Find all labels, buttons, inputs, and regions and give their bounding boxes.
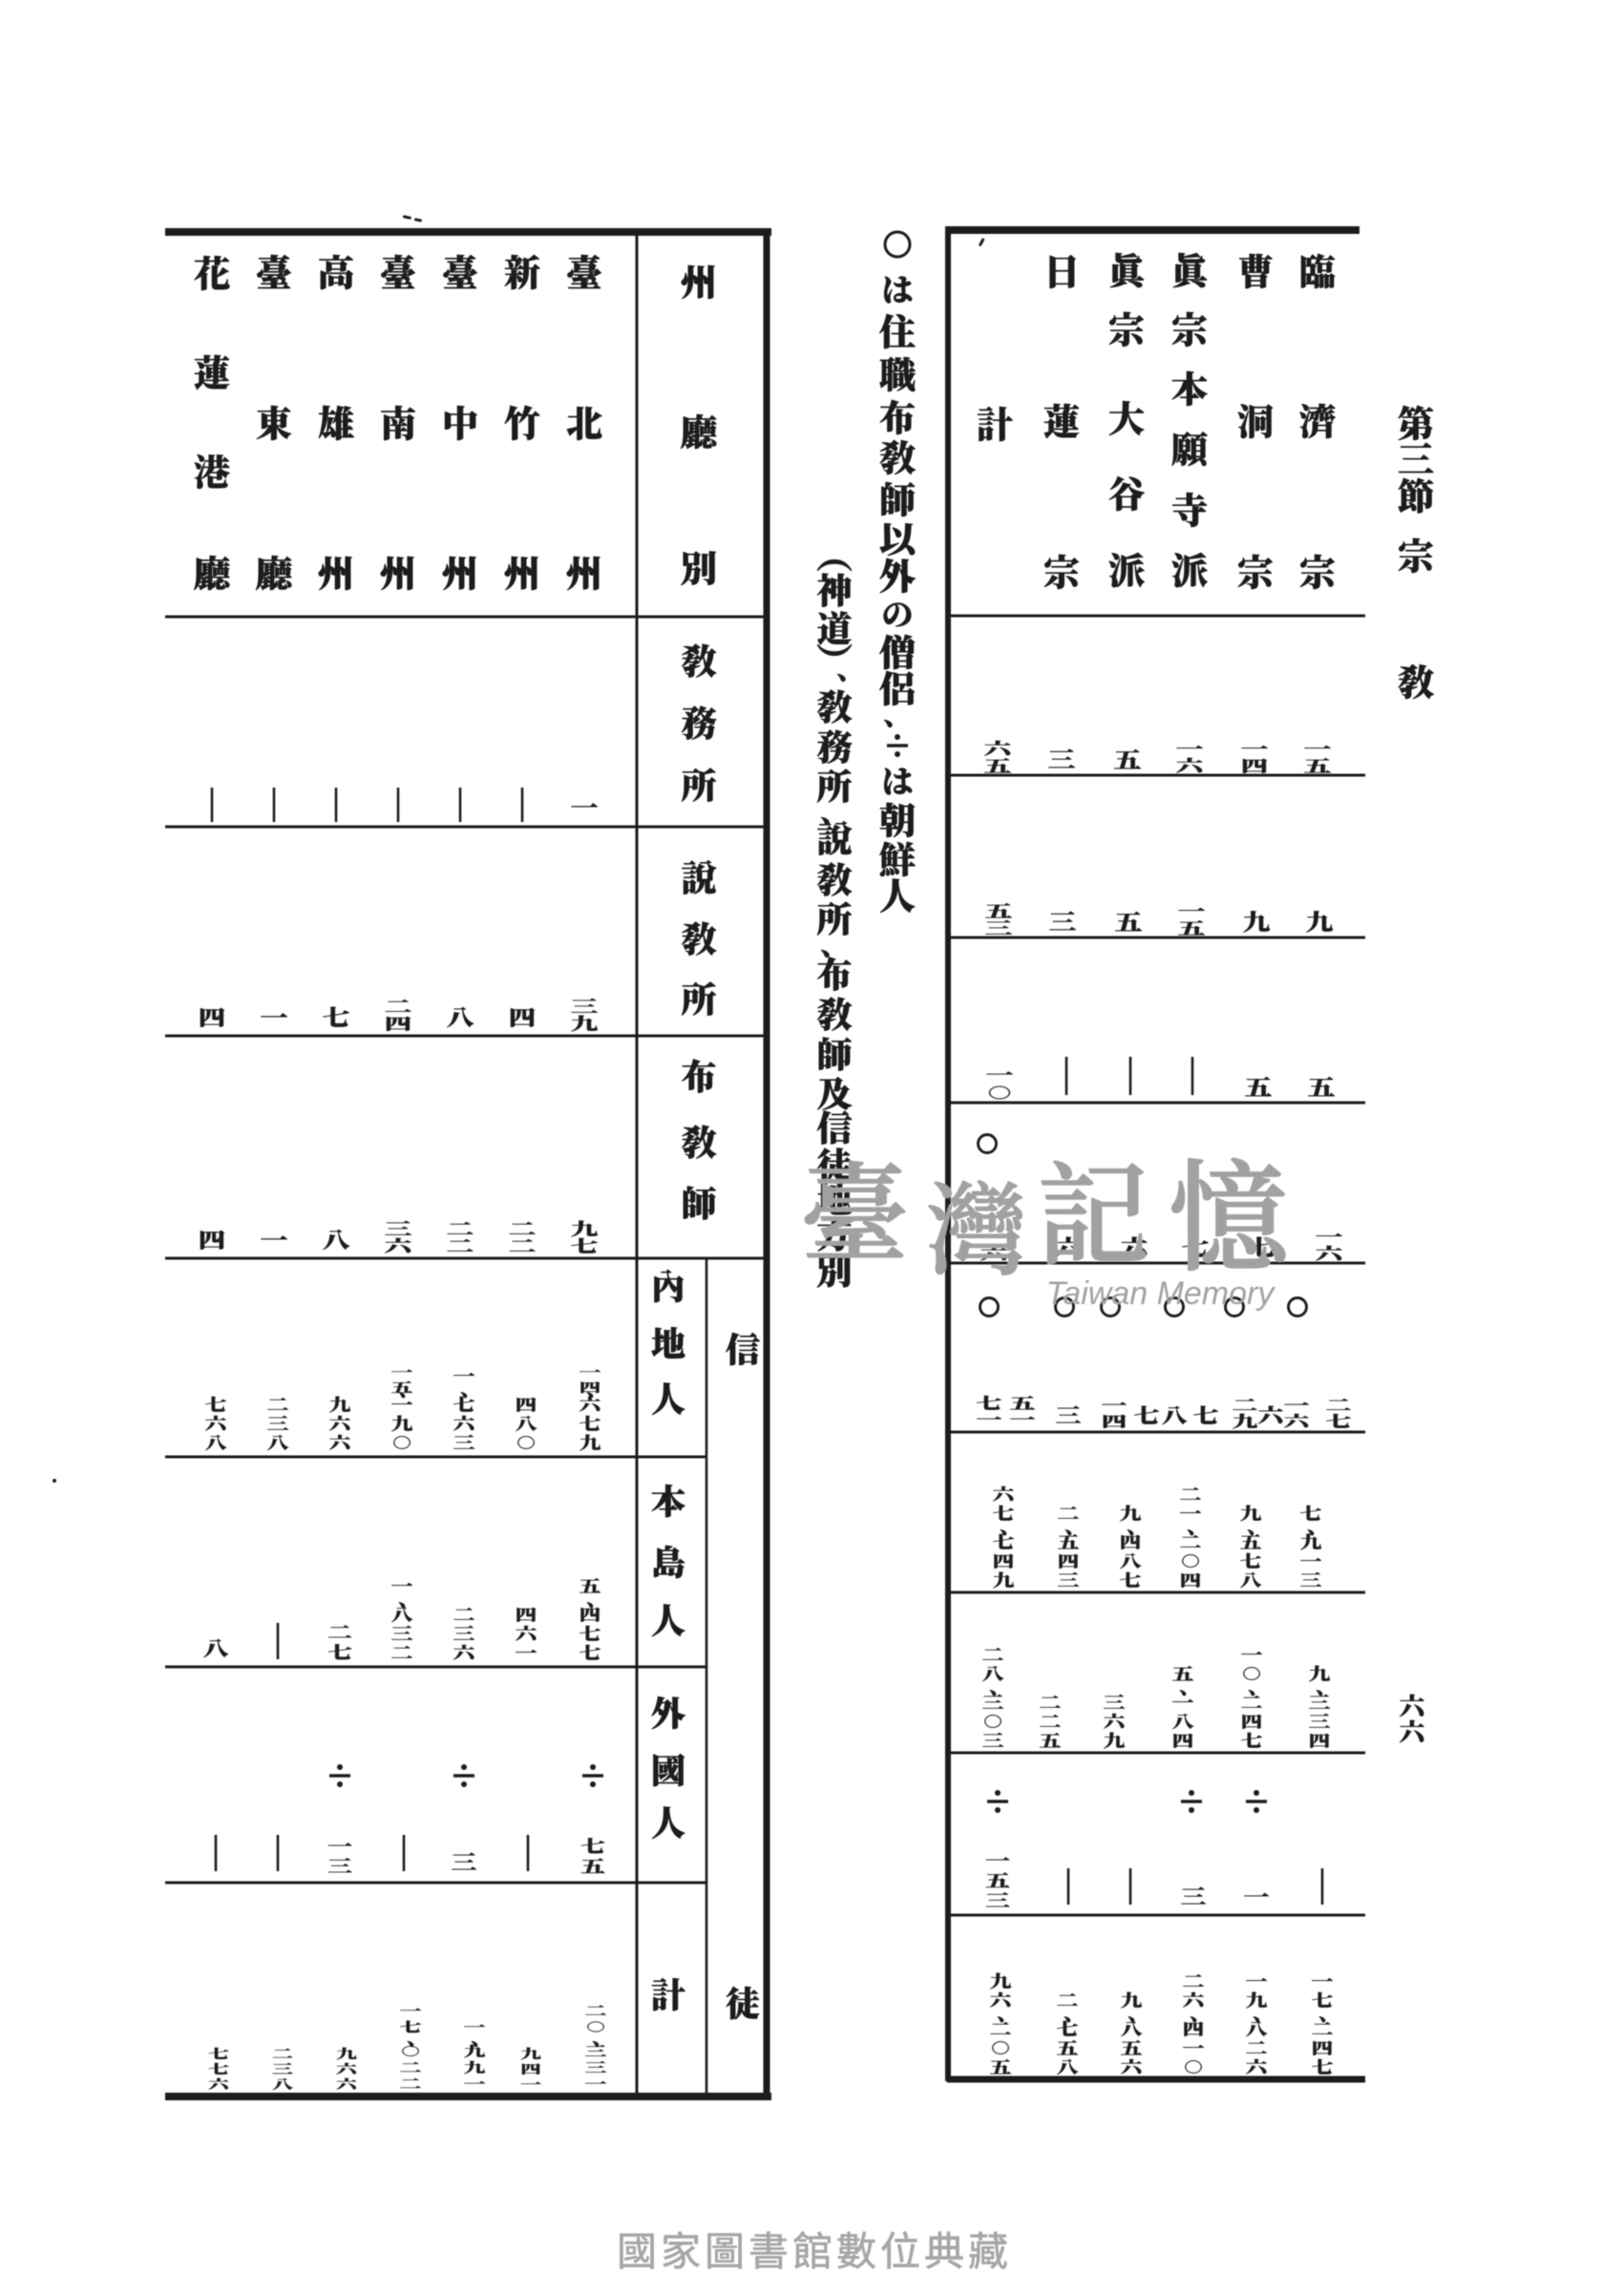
svg-text:Taiwan Memory: Taiwan Memory — [1046, 1275, 1276, 1312]
